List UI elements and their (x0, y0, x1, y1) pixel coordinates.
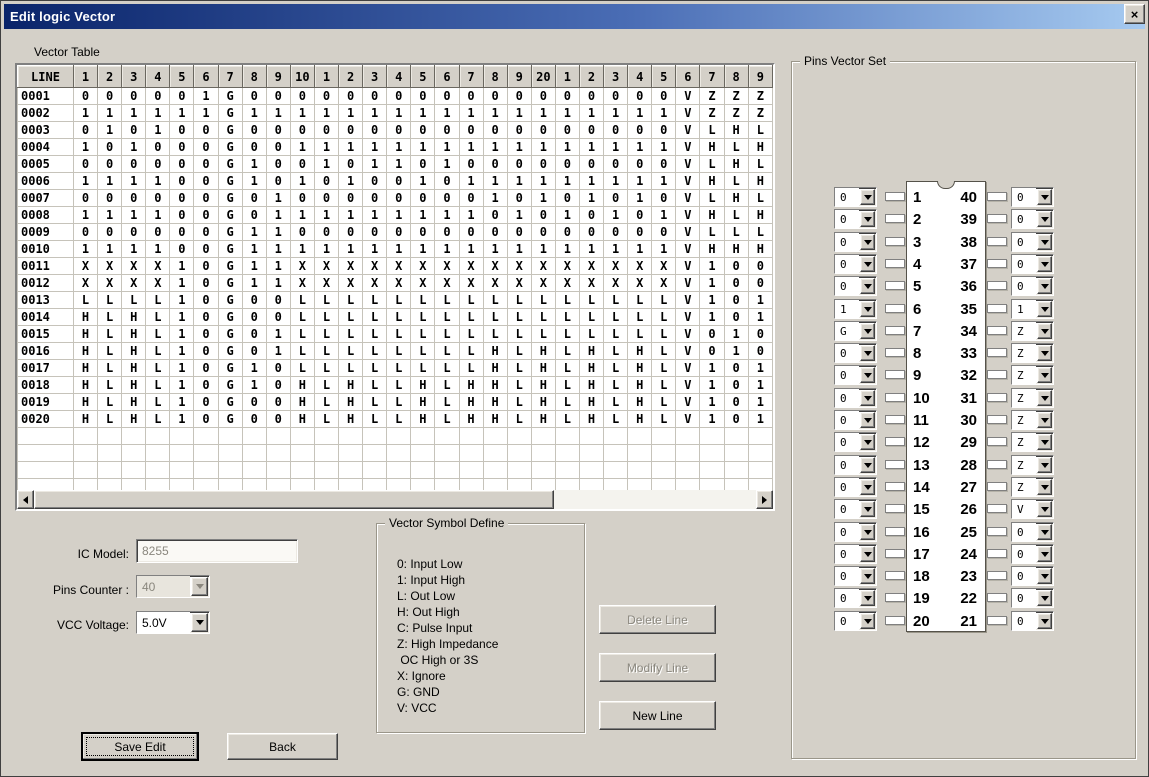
vector-cell[interactable]: 1 (74, 207, 98, 224)
vector-cell[interactable]: 0 (242, 207, 266, 224)
vector-cell[interactable]: 0 (242, 343, 266, 360)
vector-cell[interactable]: X (290, 275, 314, 292)
vector-cell[interactable]: 1 (628, 105, 652, 122)
table-row[interactable]: 0006111100G101010010111111111VHLH (18, 173, 773, 190)
vector-cell[interactable]: L (363, 360, 387, 377)
vector-cell[interactable]: 0 (122, 190, 146, 207)
vector-cell[interactable]: 0 (194, 411, 218, 428)
vector-cell[interactable]: 0 (604, 190, 628, 207)
vector-cell[interactable]: L (339, 360, 363, 377)
vector-cell[interactable]: 1 (266, 275, 290, 292)
vector-cell[interactable]: L (652, 326, 676, 343)
pin-32-combo[interactable]: Z (1011, 365, 1054, 385)
pin-18-combo-dropdown-button[interactable] (860, 568, 875, 584)
vector-cell[interactable]: L (290, 360, 314, 377)
vector-cell[interactable]: L (363, 326, 387, 343)
vector-cell[interactable]: L (507, 326, 531, 343)
vector-cell[interactable]: H (628, 377, 652, 394)
pin-3-combo-dropdown-button[interactable] (860, 234, 875, 250)
vector-cell[interactable]: L (314, 360, 338, 377)
pin-12-combo[interactable]: 0 (834, 432, 877, 452)
vector-cell[interactable]: L (459, 292, 483, 309)
vector-cell[interactable]: 1 (604, 139, 628, 156)
table-row[interactable]: 0012XXXX10G11XXXXXXXXXXXXXXXXV100 (18, 275, 773, 292)
vector-cell[interactable]: 0 (483, 88, 507, 105)
vector-cell[interactable]: H (122, 394, 146, 411)
vector-cell[interactable]: 0 (266, 309, 290, 326)
vector-cell[interactable]: 0 (579, 224, 603, 241)
vector-cell[interactable]: L (146, 326, 170, 343)
vector-cell[interactable]: H (411, 394, 435, 411)
vector-cell[interactable]: H (74, 309, 98, 326)
vector-cell[interactable]: L (363, 309, 387, 326)
vector-cell[interactable]: L (290, 309, 314, 326)
vector-cell[interactable]: L (339, 326, 363, 343)
pin-32-combo-dropdown-button[interactable] (1037, 367, 1052, 383)
vector-cell[interactable]: 0 (459, 190, 483, 207)
pin-37-combo-dropdown-button[interactable] (1037, 256, 1052, 272)
vector-cell[interactable]: 1 (555, 139, 579, 156)
vector-cell[interactable]: 0 (339, 88, 363, 105)
vector-cell[interactable]: V (676, 377, 700, 394)
vector-cell[interactable]: G (218, 156, 242, 173)
vector-cell[interactable]: X (483, 275, 507, 292)
vector-cell[interactable]: 1 (507, 105, 531, 122)
vector-cell[interactable]: L (411, 360, 435, 377)
vector-cell[interactable]: 0 (411, 122, 435, 139)
vector-cell[interactable]: L (748, 156, 772, 173)
pin-26-combo-dropdown-button[interactable] (1037, 501, 1052, 517)
vector-cell[interactable]: L (339, 343, 363, 360)
vector-cell[interactable]: 1 (339, 105, 363, 122)
vector-cell[interactable]: 0 (242, 411, 266, 428)
pin-5-combo-dropdown-button[interactable] (860, 278, 875, 294)
vector-cell[interactable]: H (724, 122, 748, 139)
vector-cell[interactable]: 1 (387, 156, 411, 173)
pin-7-combo-dropdown-button[interactable] (860, 323, 875, 339)
vector-cell[interactable]: L (146, 377, 170, 394)
vector-cell[interactable]: 1 (122, 105, 146, 122)
vector-cell[interactable]: G (218, 258, 242, 275)
vector-cell[interactable]: L (98, 326, 122, 343)
vector-cell[interactable]: L (604, 411, 628, 428)
vector-cell[interactable]: 0 (339, 224, 363, 241)
vector-cell[interactable]: 0 (242, 122, 266, 139)
pin-39-combo[interactable]: 0 (1011, 209, 1054, 229)
vector-cell[interactable]: L (146, 309, 170, 326)
vector-cell[interactable]: X (604, 275, 628, 292)
vector-cell[interactable]: H (628, 343, 652, 360)
vector-cell[interactable]: X (339, 258, 363, 275)
vector-cell[interactable]: G (218, 411, 242, 428)
vector-cell[interactable]: 0 (170, 122, 194, 139)
vector-cell[interactable]: 0 (724, 309, 748, 326)
vector-table-viewport[interactable]: LINE123456789101234567892012345678900010… (17, 65, 773, 490)
vector-cell[interactable]: X (411, 275, 435, 292)
vector-cell[interactable]: X (628, 258, 652, 275)
scrollbar-track[interactable] (34, 490, 756, 509)
vector-cell[interactable]: L (555, 394, 579, 411)
pin-23-combo-dropdown-button[interactable] (1037, 568, 1052, 584)
vector-cell[interactable]: 1 (122, 207, 146, 224)
pin-21-combo-dropdown-button[interactable] (1037, 613, 1052, 629)
vector-cell[interactable]: 1 (435, 156, 459, 173)
pin-39-combo-dropdown-button[interactable] (1037, 211, 1052, 227)
vector-cell[interactable]: X (628, 275, 652, 292)
vector-cell[interactable]: 1 (98, 122, 122, 139)
vector-cell[interactable]: L (531, 326, 555, 343)
vector-cell[interactable]: 1 (579, 241, 603, 258)
vector-cell[interactable]: H (531, 394, 555, 411)
vector-cell[interactable]: 0 (122, 224, 146, 241)
vector-cell[interactable]: 1 (170, 394, 194, 411)
vector-cell[interactable]: 1 (507, 241, 531, 258)
vector-cell[interactable]: H (122, 411, 146, 428)
vector-cell[interactable]: G (218, 292, 242, 309)
vector-cell[interactable]: 1 (435, 139, 459, 156)
vector-cell[interactable]: 0 (170, 241, 194, 258)
vector-cell[interactable]: 0 (266, 292, 290, 309)
vector-cell[interactable]: L (555, 292, 579, 309)
vector-cell[interactable]: H (531, 360, 555, 377)
pin-14-combo-dropdown-button[interactable] (860, 479, 875, 495)
vector-cell[interactable]: L (700, 122, 724, 139)
pin-34-combo-dropdown-button[interactable] (1037, 323, 1052, 339)
vector-cell[interactable]: H (122, 326, 146, 343)
vector-cell[interactable]: 1 (170, 292, 194, 309)
vector-cell[interactable]: L (652, 377, 676, 394)
vector-cell[interactable]: X (314, 258, 338, 275)
vector-cell[interactable]: 0 (604, 122, 628, 139)
vector-cell[interactable]: X (387, 258, 411, 275)
vector-cell[interactable]: V (676, 207, 700, 224)
vector-cell[interactable]: 1 (748, 360, 772, 377)
vector-cell[interactable]: 1 (74, 139, 98, 156)
vector-cell[interactable]: 0 (724, 411, 748, 428)
vector-cell[interactable]: 1 (266, 190, 290, 207)
pin-5-combo[interactable]: 0 (834, 276, 877, 296)
vector-cell[interactable]: 1 (339, 139, 363, 156)
vector-cell[interactable]: 1 (411, 139, 435, 156)
vector-cell[interactable]: H (74, 326, 98, 343)
vector-cell[interactable]: L (483, 292, 507, 309)
vector-cell[interactable]: 1 (483, 139, 507, 156)
vector-cell[interactable]: 1 (604, 105, 628, 122)
vector-cell[interactable]: L (363, 292, 387, 309)
vector-cell[interactable]: 1 (242, 360, 266, 377)
vector-cell[interactable]: H (459, 411, 483, 428)
vector-cell[interactable]: X (604, 258, 628, 275)
vector-cell[interactable]: Z (700, 88, 724, 105)
vector-cell[interactable]: 0 (435, 88, 459, 105)
vector-cell[interactable]: 1 (387, 139, 411, 156)
vector-cell[interactable]: 0 (724, 292, 748, 309)
vector-cell[interactable]: 0 (483, 122, 507, 139)
vector-cell[interactable]: L (555, 326, 579, 343)
vector-cell[interactable]: 1 (290, 139, 314, 156)
vector-cell[interactable]: X (555, 275, 579, 292)
vector-cell[interactable]: 0 (387, 88, 411, 105)
vector-cell[interactable]: L (604, 394, 628, 411)
pin-6-combo-dropdown-button[interactable] (860, 301, 875, 317)
vector-cell[interactable]: 0 (194, 258, 218, 275)
vector-cell[interactable]: 1 (74, 105, 98, 122)
pin-14-combo[interactable]: 0 (834, 477, 877, 497)
vector-cell[interactable]: 0 (435, 122, 459, 139)
vector-cell[interactable]: H (700, 207, 724, 224)
vector-cell[interactable]: 1 (363, 139, 387, 156)
vector-cell[interactable]: 0 (411, 156, 435, 173)
vector-cell[interactable]: X (290, 258, 314, 275)
pin-4-combo[interactable]: 0 (834, 254, 877, 274)
vector-cell[interactable]: 1 (700, 360, 724, 377)
vector-cell[interactable]: 1 (170, 309, 194, 326)
vector-cell[interactable]: 0 (579, 156, 603, 173)
vector-cell[interactable]: H (411, 411, 435, 428)
vector-cell[interactable]: 1 (314, 105, 338, 122)
vector-cell[interactable]: H (483, 343, 507, 360)
vector-cell[interactable]: V (676, 275, 700, 292)
vector-cell[interactable]: 0 (98, 139, 122, 156)
vector-table[interactable]: LINE123456789101234567892012345678900010… (17, 65, 773, 490)
pin-36-combo-dropdown-button[interactable] (1037, 278, 1052, 294)
vector-cell[interactable]: G (218, 343, 242, 360)
vector-cell[interactable]: 1 (531, 173, 555, 190)
vector-cell[interactable]: 1 (411, 173, 435, 190)
vector-cell[interactable]: L (314, 309, 338, 326)
vector-cell[interactable]: L (628, 292, 652, 309)
pin-13-combo-dropdown-button[interactable] (860, 457, 875, 473)
vector-cell[interactable]: L (507, 292, 531, 309)
vector-cell[interactable]: 0 (435, 190, 459, 207)
vector-cell[interactable]: 0 (724, 394, 748, 411)
vector-cell[interactable]: H (411, 377, 435, 394)
vector-cell[interactable]: 1 (314, 139, 338, 156)
vector-cell[interactable]: L (604, 326, 628, 343)
vector-cell[interactable]: 0 (652, 156, 676, 173)
vector-cell[interactable]: H (579, 394, 603, 411)
vector-cell[interactable]: 0 (266, 88, 290, 105)
pin-22-combo[interactable]: 0 (1011, 588, 1054, 608)
pin-19-combo-dropdown-button[interactable] (860, 590, 875, 606)
table-row[interactable]: 0017HLHL10G10LLLLLLLLHLHLHLHLV101 (18, 360, 773, 377)
vector-cell[interactable]: 1 (652, 207, 676, 224)
vector-cell[interactable]: L (387, 292, 411, 309)
vector-cell[interactable]: 0 (507, 224, 531, 241)
vector-cell[interactable]: 0 (194, 139, 218, 156)
vector-cell[interactable]: L (555, 309, 579, 326)
vector-cell[interactable]: X (363, 275, 387, 292)
vector-cell[interactable]: 0 (122, 88, 146, 105)
vector-cell[interactable]: L (459, 326, 483, 343)
vector-cell[interactable]: 0 (122, 156, 146, 173)
vector-cell[interactable]: 0 (459, 156, 483, 173)
vector-cell[interactable]: 1 (242, 241, 266, 258)
vector-cell[interactable]: 0 (387, 173, 411, 190)
vector-cell[interactable]: 0 (194, 173, 218, 190)
vector-cell[interactable]: 1 (555, 207, 579, 224)
pin-27-combo[interactable]: Z (1011, 477, 1054, 497)
vector-cell[interactable]: L (387, 326, 411, 343)
vector-cell[interactable]: 0 (387, 224, 411, 241)
vector-cell[interactable]: H (459, 394, 483, 411)
vector-cell[interactable]: 1 (700, 394, 724, 411)
vector-cell[interactable]: 0 (531, 156, 555, 173)
vector-cell[interactable]: X (652, 258, 676, 275)
pin-26-combo[interactable]: V (1011, 499, 1054, 519)
vector-cell[interactable]: H (74, 394, 98, 411)
vector-cell[interactable]: H (74, 411, 98, 428)
vector-cell[interactable]: X (483, 258, 507, 275)
vector-cell[interactable]: X (146, 275, 170, 292)
vector-cell[interactable]: 0 (266, 173, 290, 190)
pin-17-combo-dropdown-button[interactable] (860, 546, 875, 562)
vector-cell[interactable]: L (555, 411, 579, 428)
vector-cell[interactable]: 0 (411, 224, 435, 241)
vector-cell[interactable]: L (652, 394, 676, 411)
vector-cell[interactable]: 1 (507, 173, 531, 190)
vector-cell[interactable]: H (748, 241, 772, 258)
vector-cell[interactable]: 0 (122, 122, 146, 139)
vector-cell[interactable]: Z (724, 88, 748, 105)
vector-cell[interactable]: H (483, 394, 507, 411)
vector-cell[interactable]: L (700, 224, 724, 241)
vector-cell[interactable]: 0 (314, 88, 338, 105)
vector-cell[interactable]: 1 (507, 139, 531, 156)
vector-cell[interactable]: H (74, 343, 98, 360)
vector-cell[interactable]: 0 (507, 156, 531, 173)
vector-cell[interactable]: H (700, 139, 724, 156)
vector-cell[interactable]: H (724, 241, 748, 258)
vector-cell[interactable]: L (459, 309, 483, 326)
vector-cell[interactable]: L (748, 224, 772, 241)
vector-cell[interactable]: V (676, 156, 700, 173)
pin-40-combo[interactable]: 0 (1011, 187, 1054, 207)
vector-cell[interactable]: 0 (194, 377, 218, 394)
vector-cell[interactable]: V (676, 88, 700, 105)
vector-cell[interactable]: 0 (748, 326, 772, 343)
pin-38-combo[interactable]: 0 (1011, 232, 1054, 252)
vector-cell[interactable]: L (628, 326, 652, 343)
vector-cell[interactable]: G (218, 190, 242, 207)
vector-cell[interactable]: 0 (194, 122, 218, 139)
vector-cell[interactable]: 0 (507, 190, 531, 207)
pin-29-combo-dropdown-button[interactable] (1037, 434, 1052, 450)
vector-cell[interactable]: L (98, 394, 122, 411)
pin-1-combo[interactable]: 0 (834, 187, 877, 207)
pin-11-combo-dropdown-button[interactable] (860, 412, 875, 428)
vector-cell[interactable]: V (676, 190, 700, 207)
vector-cell[interactable]: 0 (98, 224, 122, 241)
pin-38-combo-dropdown-button[interactable] (1037, 234, 1052, 250)
vector-cell[interactable]: L (314, 411, 338, 428)
vector-cell[interactable]: 0 (170, 207, 194, 224)
vector-cell[interactable]: 0 (242, 394, 266, 411)
vector-cell[interactable]: 0 (652, 122, 676, 139)
vector-cell[interactable]: 0 (459, 88, 483, 105)
vector-cell[interactable]: L (98, 309, 122, 326)
vector-cell[interactable]: H (724, 190, 748, 207)
vector-cell[interactable]: L (98, 411, 122, 428)
vector-cell[interactable]: G (218, 275, 242, 292)
pin-40-combo-dropdown-button[interactable] (1037, 189, 1052, 205)
vector-cell[interactable]: 1 (146, 241, 170, 258)
vector-cell[interactable]: 0 (74, 88, 98, 105)
pin-16-combo-dropdown-button[interactable] (860, 524, 875, 540)
vector-cell[interactable]: 0 (314, 224, 338, 241)
vector-cell[interactable]: 1 (555, 241, 579, 258)
scroll-left-button[interactable] (17, 490, 34, 509)
vector-cell[interactable]: X (435, 258, 459, 275)
vector-cell[interactable]: 1 (170, 105, 194, 122)
vector-cell[interactable]: 1 (531, 105, 555, 122)
vector-cell[interactable]: V (676, 394, 700, 411)
vector-cell[interactable]: 0 (411, 190, 435, 207)
vector-cell[interactable]: 1 (459, 139, 483, 156)
pin-9-combo[interactable]: 0 (834, 365, 877, 385)
vector-cell[interactable]: L (507, 309, 531, 326)
vector-cell[interactable]: 0 (146, 224, 170, 241)
vector-cell[interactable]: 0 (194, 292, 218, 309)
vector-cell[interactable]: X (74, 275, 98, 292)
vector-cell[interactable]: 0 (748, 343, 772, 360)
vector-cell[interactable]: V (676, 326, 700, 343)
vector-cell[interactable]: 1 (700, 258, 724, 275)
vector-cell[interactable]: L (339, 309, 363, 326)
vector-cell[interactable]: 0 (531, 122, 555, 139)
vector-cell[interactable]: L (652, 360, 676, 377)
vector-cell[interactable]: 1 (483, 173, 507, 190)
vector-cell[interactable]: L (531, 309, 555, 326)
pin-35-combo-dropdown-button[interactable] (1037, 301, 1052, 317)
vector-cell[interactable]: H (74, 377, 98, 394)
vector-cell[interactable]: 0 (170, 139, 194, 156)
vector-cell[interactable]: V (676, 105, 700, 122)
vector-cell[interactable]: 0 (74, 122, 98, 139)
table-row[interactable]: 0018HLHL10G10HLHLLHLHHLHLHLHLV101 (18, 377, 773, 394)
vector-cell[interactable]: 1 (266, 224, 290, 241)
vector-cell[interactable]: 1 (339, 241, 363, 258)
vector-cell[interactable]: 1 (604, 241, 628, 258)
vector-cell[interactable]: 0 (724, 377, 748, 394)
vector-cell[interactable]: X (122, 258, 146, 275)
vector-cell[interactable]: 1 (146, 122, 170, 139)
pin-9-combo-dropdown-button[interactable] (860, 367, 875, 383)
vector-cell[interactable]: 0 (652, 88, 676, 105)
vector-cell[interactable]: X (459, 275, 483, 292)
vector-cell[interactable]: H (531, 377, 555, 394)
vector-cell[interactable]: 0 (724, 275, 748, 292)
vector-cell[interactable]: H (748, 139, 772, 156)
vector-cell[interactable]: H (628, 360, 652, 377)
pin-7-combo[interactable]: G (834, 321, 877, 341)
scrollbar-thumb[interactable] (34, 490, 554, 509)
table-row[interactable]: 0008111100G011111111101010101VHLH (18, 207, 773, 224)
vector-cell[interactable]: 0 (483, 156, 507, 173)
vector-cell[interactable]: 1 (724, 326, 748, 343)
pin-30-combo[interactable]: Z (1011, 410, 1054, 430)
vector-cell[interactable]: 1 (459, 105, 483, 122)
vector-cell[interactable]: L (314, 394, 338, 411)
vector-cell[interactable]: 0 (435, 224, 459, 241)
vector-cell[interactable]: 0 (628, 156, 652, 173)
vector-cell[interactable]: 0 (483, 224, 507, 241)
pin-17-combo[interactable]: 0 (834, 544, 877, 564)
pin-8-combo-dropdown-button[interactable] (860, 345, 875, 361)
vector-cell[interactable]: L (652, 292, 676, 309)
vector-cell[interactable]: 1 (290, 207, 314, 224)
pin-20-combo-dropdown-button[interactable] (860, 613, 875, 629)
